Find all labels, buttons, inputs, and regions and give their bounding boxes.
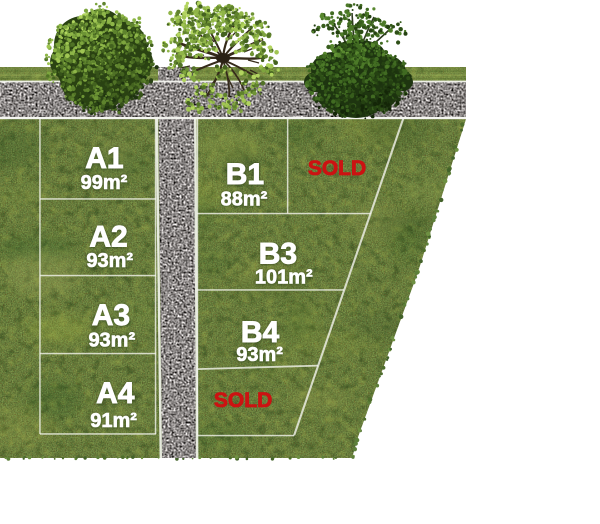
svg-text:SOLD: SOLD (308, 157, 366, 180)
svg-text:A3: A3 (92, 299, 130, 332)
svg-text:93m²: 93m² (236, 344, 283, 366)
svg-text:B1: B1 (226, 158, 264, 191)
svg-text:A2: A2 (89, 221, 127, 254)
svg-text:SOLD: SOLD (214, 389, 272, 412)
svg-text:93m²: 93m² (86, 250, 133, 272)
svg-text:99m²: 99m² (81, 172, 128, 194)
svg-text:B3: B3 (259, 237, 297, 270)
svg-text:A1: A1 (85, 142, 123, 175)
svg-text:88m²: 88m² (221, 189, 268, 211)
svg-text:93m²: 93m² (88, 330, 135, 352)
svg-text:A4: A4 (96, 377, 135, 410)
svg-text:101m²: 101m² (255, 267, 313, 289)
svg-text:91m²: 91m² (90, 410, 137, 432)
